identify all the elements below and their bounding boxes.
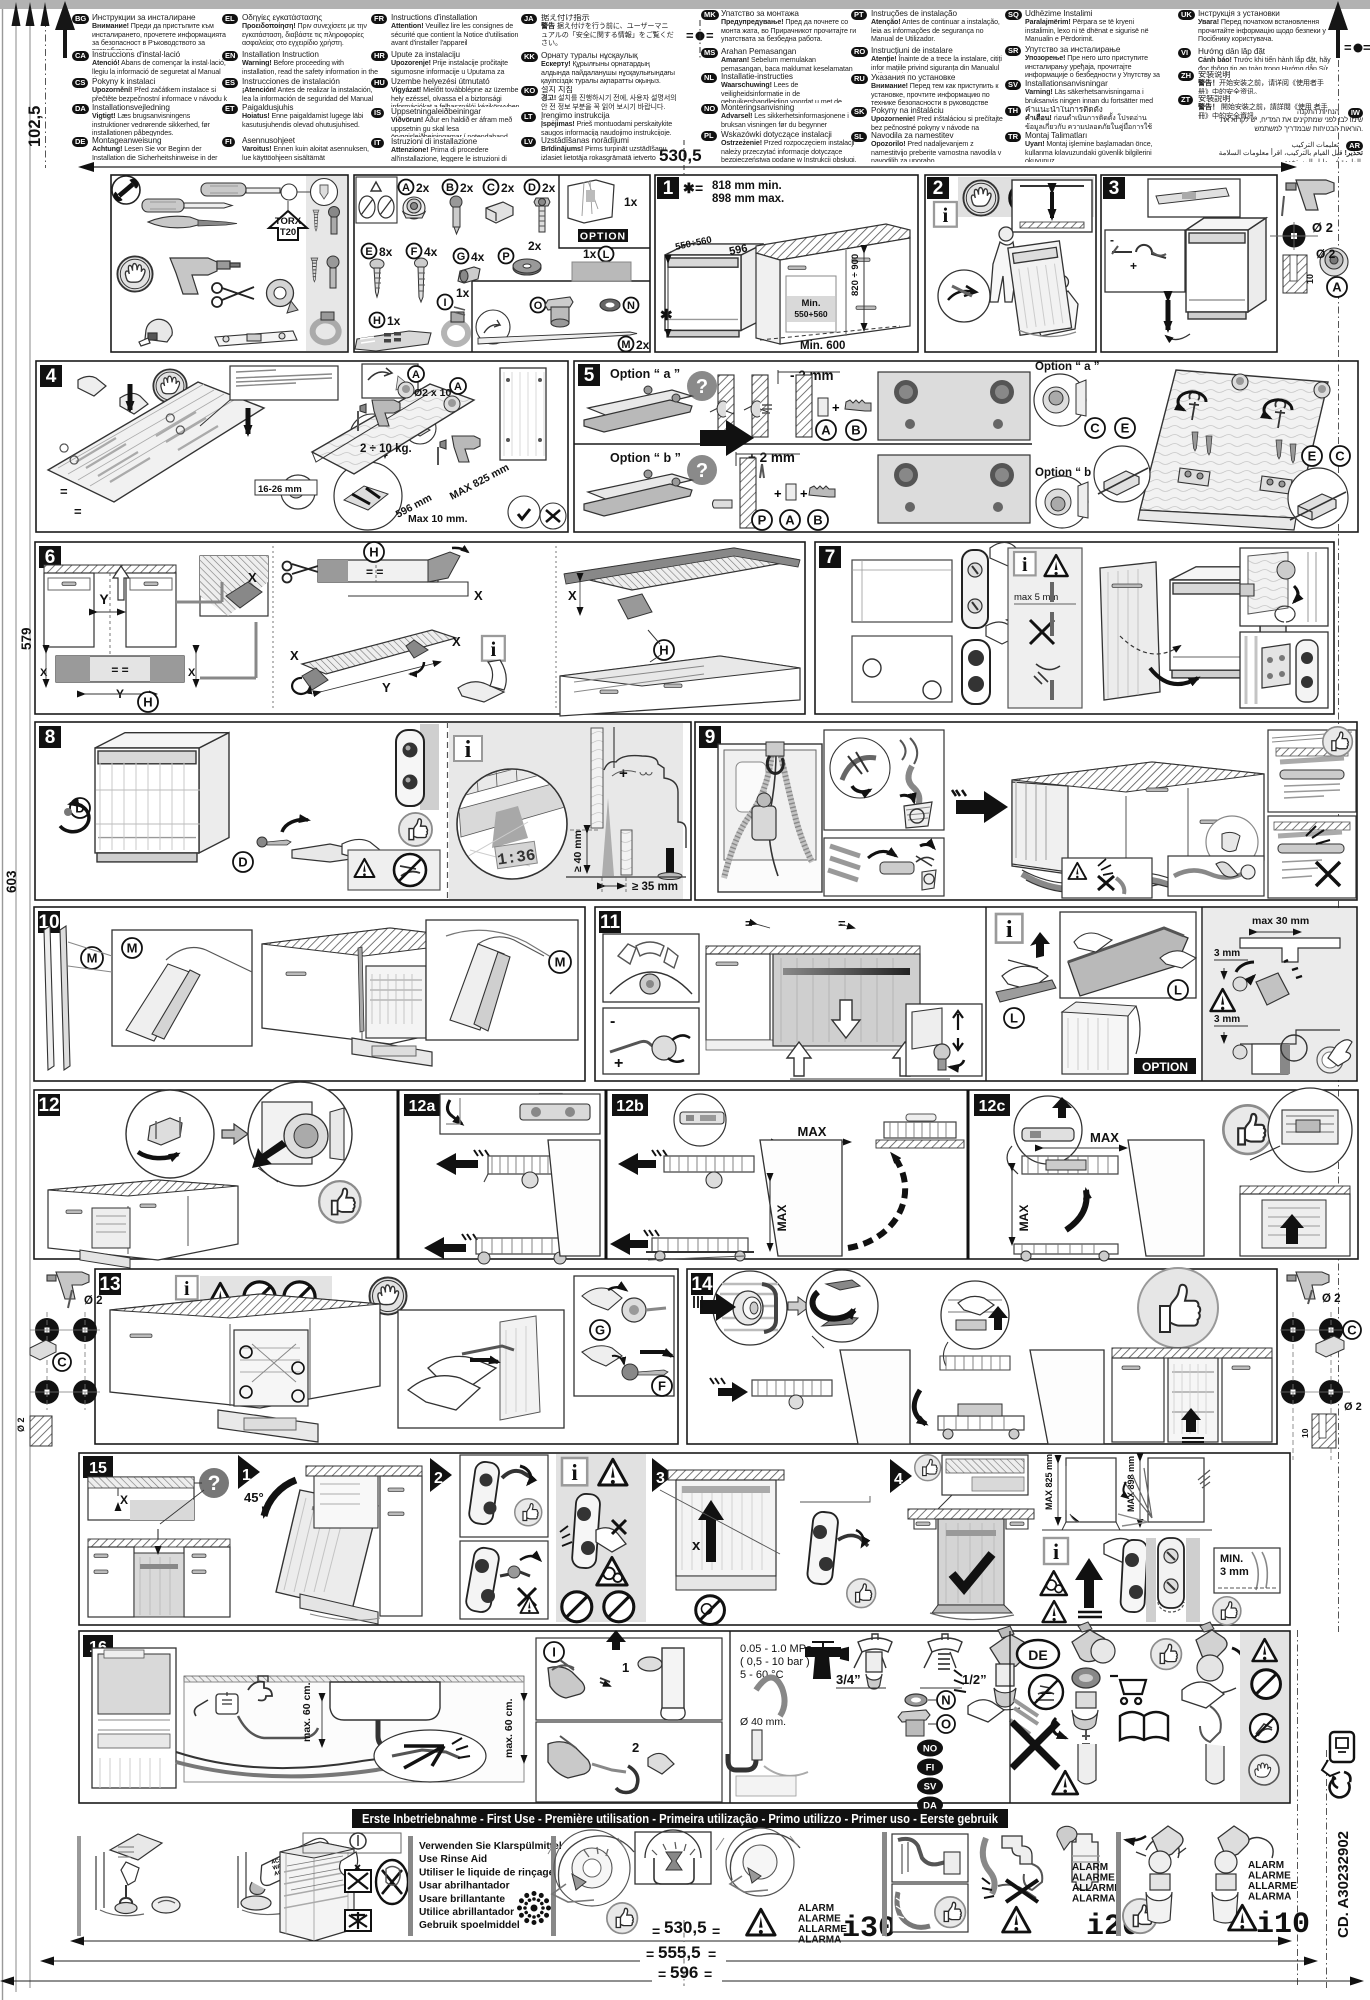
svg-text:3 mm: 3 mm [1214,948,1240,959]
svg-text:MAX 825 mm: MAX 825 mm [1044,1454,1054,1510]
svg-text:E: E [365,246,372,258]
svg-text:x: x [692,1537,701,1554]
svg-text:Ø 2: Ø 2 [1312,220,1333,235]
svg-text:1: 1 [242,1467,251,1484]
svg-text:Option “ a ”: Option “ a ” [610,367,680,381]
svg-text:Ø 2: Ø 2 [84,1295,103,1307]
svg-text:i: i [465,737,472,763]
svg-text:O: O [534,300,543,312]
svg-text:2: 2 [434,1470,443,1487]
svg-text:1x: 1x [387,314,401,328]
svg-text:3: 3 [656,1470,665,1487]
svg-text:2: 2 [933,178,944,199]
svg-text:Ø2 x 10: Ø2 x 10 [414,387,452,399]
svg-text:max. 60 cm.: max. 60 cm. [301,1682,313,1742]
svg-text:NO: NO [923,1744,937,1755]
svg-text:0.05 - 1.0 MPa: 0.05 - 1.0 MPa [740,1643,813,1655]
svg-text:ALARME: ALARME [1248,1871,1291,1882]
svg-text:G: G [595,1323,605,1338]
svg-text:L: L [1010,1011,1018,1026]
svg-text:1x: 1x [583,247,597,261]
svg-text:C: C [57,1355,67,1370]
svg-text:Min. 600: Min. 600 [800,340,845,352]
svg-text:Min.: Min. [802,298,821,309]
svg-text:A: A [412,369,420,381]
svg-text:E: E [1121,421,1130,436]
svg-text:ALARMA: ALARMA [1072,1894,1115,1905]
svg-text:+: + [614,1055,623,1072]
svg-text:X: X [120,1493,128,1507]
svg-text:2x: 2x [416,181,430,195]
svg-text:X: X [474,588,483,603]
svg-text:12a: 12a [409,1098,436,1115]
svg-text:I: I [552,1645,556,1660]
svg-text:TORX: TORX [275,216,302,227]
svg-text:555,5: 555,5 [658,1943,701,1962]
svg-text:2x: 2x [528,239,542,253]
svg-text:= =: = = [366,565,383,579]
svg-text:Usar abrilhantador: Usar abrilhantador [419,1881,510,1892]
svg-text:≥ 40 mm: ≥ 40 mm [572,830,584,872]
svg-text:Ø 2: Ø 2 [1316,247,1336,261]
svg-text:X: X [568,588,577,603]
svg-text:Max 10 mm.: Max 10 mm. [408,513,468,525]
svg-text:L: L [603,249,610,261]
svg-text:16-26 mm: 16-26 mm [258,484,302,495]
svg-text:9: 9 [705,727,716,748]
svg-text:MAX: MAX [798,1124,827,1139]
svg-text:ALARMA: ALARMA [1248,1892,1291,1903]
svg-text:C: C [1090,421,1100,436]
svg-text:≥ 35 mm: ≥ 35 mm [632,881,678,893]
svg-text:45°: 45° [244,1490,264,1505]
svg-text:10: 10 [1305,274,1315,284]
svg-text:?: ? [696,460,708,482]
svg-text:MAX 898 mm: MAX 898 mm [1126,1456,1136,1512]
svg-text:=: = [704,1966,712,1982]
svg-text:=: = [646,1946,654,1962]
svg-text:Erste Inbetriebnahme - First U: Erste Inbetriebnahme - First Use - Premi… [362,1812,999,1826]
svg-text:8: 8 [45,727,56,748]
svg-text:Utiliser le liquide de rinçage: Utiliser le liquide de rinçage [419,1867,555,1878]
svg-text:ALARM: ALARM [798,1903,834,1914]
svg-text:1x: 1x [624,195,638,209]
svg-text:ALLARME: ALLARME [1248,1881,1297,1892]
svg-text:H: H [143,695,152,710]
svg-text:i10: i10 [1256,1908,1310,1942]
svg-text:M: M [87,951,98,966]
svg-text:ALARM: ALARM [1072,1862,1108,1873]
svg-text:G: G [457,251,466,263]
svg-text:898 mm max.: 898 mm max. [712,193,784,205]
svg-text:B: B [446,182,454,194]
svg-text:P: P [758,513,767,528]
svg-text:+: + [832,400,840,415]
svg-text:C: C [487,182,495,194]
svg-text:Utilice abrillantador: Utilice abrillantador [419,1907,514,1918]
svg-text:A: A [402,182,410,194]
svg-text:= =: = = [111,663,128,677]
svg-text:-: - [610,1013,615,1030]
svg-text:A: A [785,513,795,528]
svg-text:5: 5 [584,365,595,386]
svg-text:B: B [851,423,860,438]
svg-text:D: D [528,182,536,194]
svg-text:?: ? [696,376,708,398]
svg-text:X: X [188,667,196,679]
svg-text:F: F [658,1379,666,1394]
svg-text:1: 1 [663,178,674,199]
svg-text:12c: 12c [979,1098,1006,1115]
svg-text:ALARM: ALARM [1248,1860,1284,1871]
svg-text:ALLARME: ALLARME [798,1924,847,1935]
svg-text:=: = [838,916,846,931]
svg-text:MAX 825 mm: MAX 825 mm [448,461,511,502]
svg-text:MAX: MAX [775,1205,789,1232]
svg-text:-: - [1110,233,1114,247]
svg-text:MAX: MAX [1017,1205,1031,1232]
svg-text:M: M [555,955,566,970]
svg-text:=: = [60,484,68,499]
svg-text:?: ? [208,1472,221,1495]
svg-text:1x: 1x [456,286,470,300]
svg-text:+: + [774,486,782,501]
svg-text:MIN.: MIN. [1220,1553,1243,1565]
svg-text:Verwenden Sie Klarspülmittel: Verwenden Sie Klarspülmittel [419,1841,562,1852]
svg-text:max 30 mm: max 30 mm [1252,915,1309,927]
svg-text:2x: 2x [542,181,556,195]
svg-text:ALLARME: ALLARME [1072,1883,1121,1894]
svg-text:11: 11 [600,912,621,933]
svg-text:Y: Y [382,680,391,695]
svg-text:ALARMA: ALARMA [798,1935,841,1946]
svg-text:F: F [411,246,418,258]
svg-text:X: X [40,667,48,679]
svg-text:I: I [443,297,446,309]
svg-text:2: 2 [632,1740,639,1755]
svg-text:Y: Y [99,591,109,607]
svg-text:E: E [1308,449,1317,464]
svg-text:DE: DE [1028,1647,1047,1663]
svg-text:Option “ b ”: Option “ b ” [610,451,681,465]
svg-text:+: + [1130,259,1137,273]
svg-text:13: 13 [99,1274,120,1295]
svg-text:Gebruik spoelmiddel: Gebruik spoelmiddel [419,1920,520,1931]
svg-text:12: 12 [38,1095,59,1116]
svg-text:OPTION: OPTION [1142,1060,1188,1074]
svg-text:550+560: 550+560 [794,309,828,319]
svg-text:14: 14 [691,1274,713,1295]
svg-text:C: C [1347,1323,1357,1338]
svg-text:A: A [454,381,462,393]
svg-text:10: 10 [1300,1428,1310,1438]
svg-text:P: P [502,251,509,263]
svg-text:12b: 12b [616,1098,644,1115]
svg-text:15: 15 [89,1460,107,1477]
svg-text:2x: 2x [636,338,650,352]
svg-text:D: D [238,855,247,870]
svg-text:ALARME: ALARME [798,1914,841,1925]
svg-text:3/4”: 3/4” [836,1672,861,1687]
svg-text:B: B [813,513,822,528]
svg-text:+: + [619,765,628,782]
svg-text:820 ÷ 900: 820 ÷ 900 [850,254,861,296]
svg-text:M: M [621,339,630,351]
svg-text:H: H [373,315,381,327]
svg-text:4x: 4x [471,250,485,264]
svg-text:N: N [627,300,635,312]
svg-text:3: 3 [1109,178,1120,199]
svg-text:Use Rinse Aid: Use Rinse Aid [419,1854,487,1865]
svg-text:818 mm min.: 818 mm min. [712,180,782,192]
svg-text:CD. A30232902: CD. A30232902 [1335,1831,1352,1938]
svg-text:530,5: 530,5 [664,1918,707,1937]
svg-text:M: M [127,941,138,956]
svg-text:C: C [1335,449,1345,464]
svg-text:=: = [658,1966,666,1982]
svg-text:=: = [745,916,753,931]
svg-text:O: O [941,1717,951,1732]
svg-text:2x: 2x [501,181,515,195]
svg-text:OPTION: OPTION [580,231,626,243]
svg-text:max. 60 cm.: max. 60 cm. [503,1698,515,1758]
svg-text:N: N [941,1693,950,1708]
svg-text:T20: T20 [280,227,296,238]
svg-text:ALARME: ALARME [1072,1873,1115,1884]
svg-text:=: = [652,1923,660,1939]
svg-text:FI: FI [926,1763,934,1774]
svg-text:4x: 4x [424,245,438,259]
svg-text:4: 4 [894,1471,903,1488]
svg-text:2x: 2x [460,181,474,195]
svg-text:X: X [248,570,257,585]
svg-text:4: 4 [46,366,57,387]
svg-text:A: A [1332,280,1342,295]
svg-text:+: + [800,486,808,501]
svg-text:Ø 2: Ø 2 [1322,1293,1341,1305]
svg-text:( 0,5 - 10 bar ): ( 0,5 - 10 bar ) [740,1656,810,1668]
svg-text:L: L [1174,983,1182,998]
svg-text:MAX: MAX [1090,1130,1119,1145]
svg-text:=: = [695,180,703,196]
svg-text:2 ÷ 10 kg.: 2 ÷ 10 kg. [360,443,412,455]
svg-text:3 mm: 3 mm [1220,1566,1249,1578]
svg-text:✱: ✱ [683,180,695,196]
svg-text:3 mm: 3 mm [1214,1014,1240,1025]
svg-text:1/2”: 1/2” [962,1672,987,1687]
svg-text:=: = [708,1946,716,1962]
svg-text:SV: SV [924,1782,937,1793]
svg-text:X: X [290,648,299,663]
svg-text:H: H [369,545,378,560]
svg-text:=: = [74,504,82,519]
svg-text:A: A [821,423,831,438]
svg-text:Usare brillantante: Usare brillantante [419,1894,505,1905]
svg-text:=: = [712,1923,720,1939]
svg-text:Option “ a ”: Option “ a ” [1035,361,1100,373]
svg-text:Ø 2: Ø 2 [1344,1401,1362,1413]
svg-text:7: 7 [825,547,836,568]
svg-text:8x: 8x [379,245,393,259]
svg-text:1: 1 [622,1660,629,1675]
svg-text:Ø 40 mm.: Ø 40 mm. [740,1716,786,1728]
svg-text:✱: ✱ [660,307,673,324]
svg-text:Ø 2: Ø 2 [16,1417,26,1432]
svg-text:X: X [452,634,461,649]
